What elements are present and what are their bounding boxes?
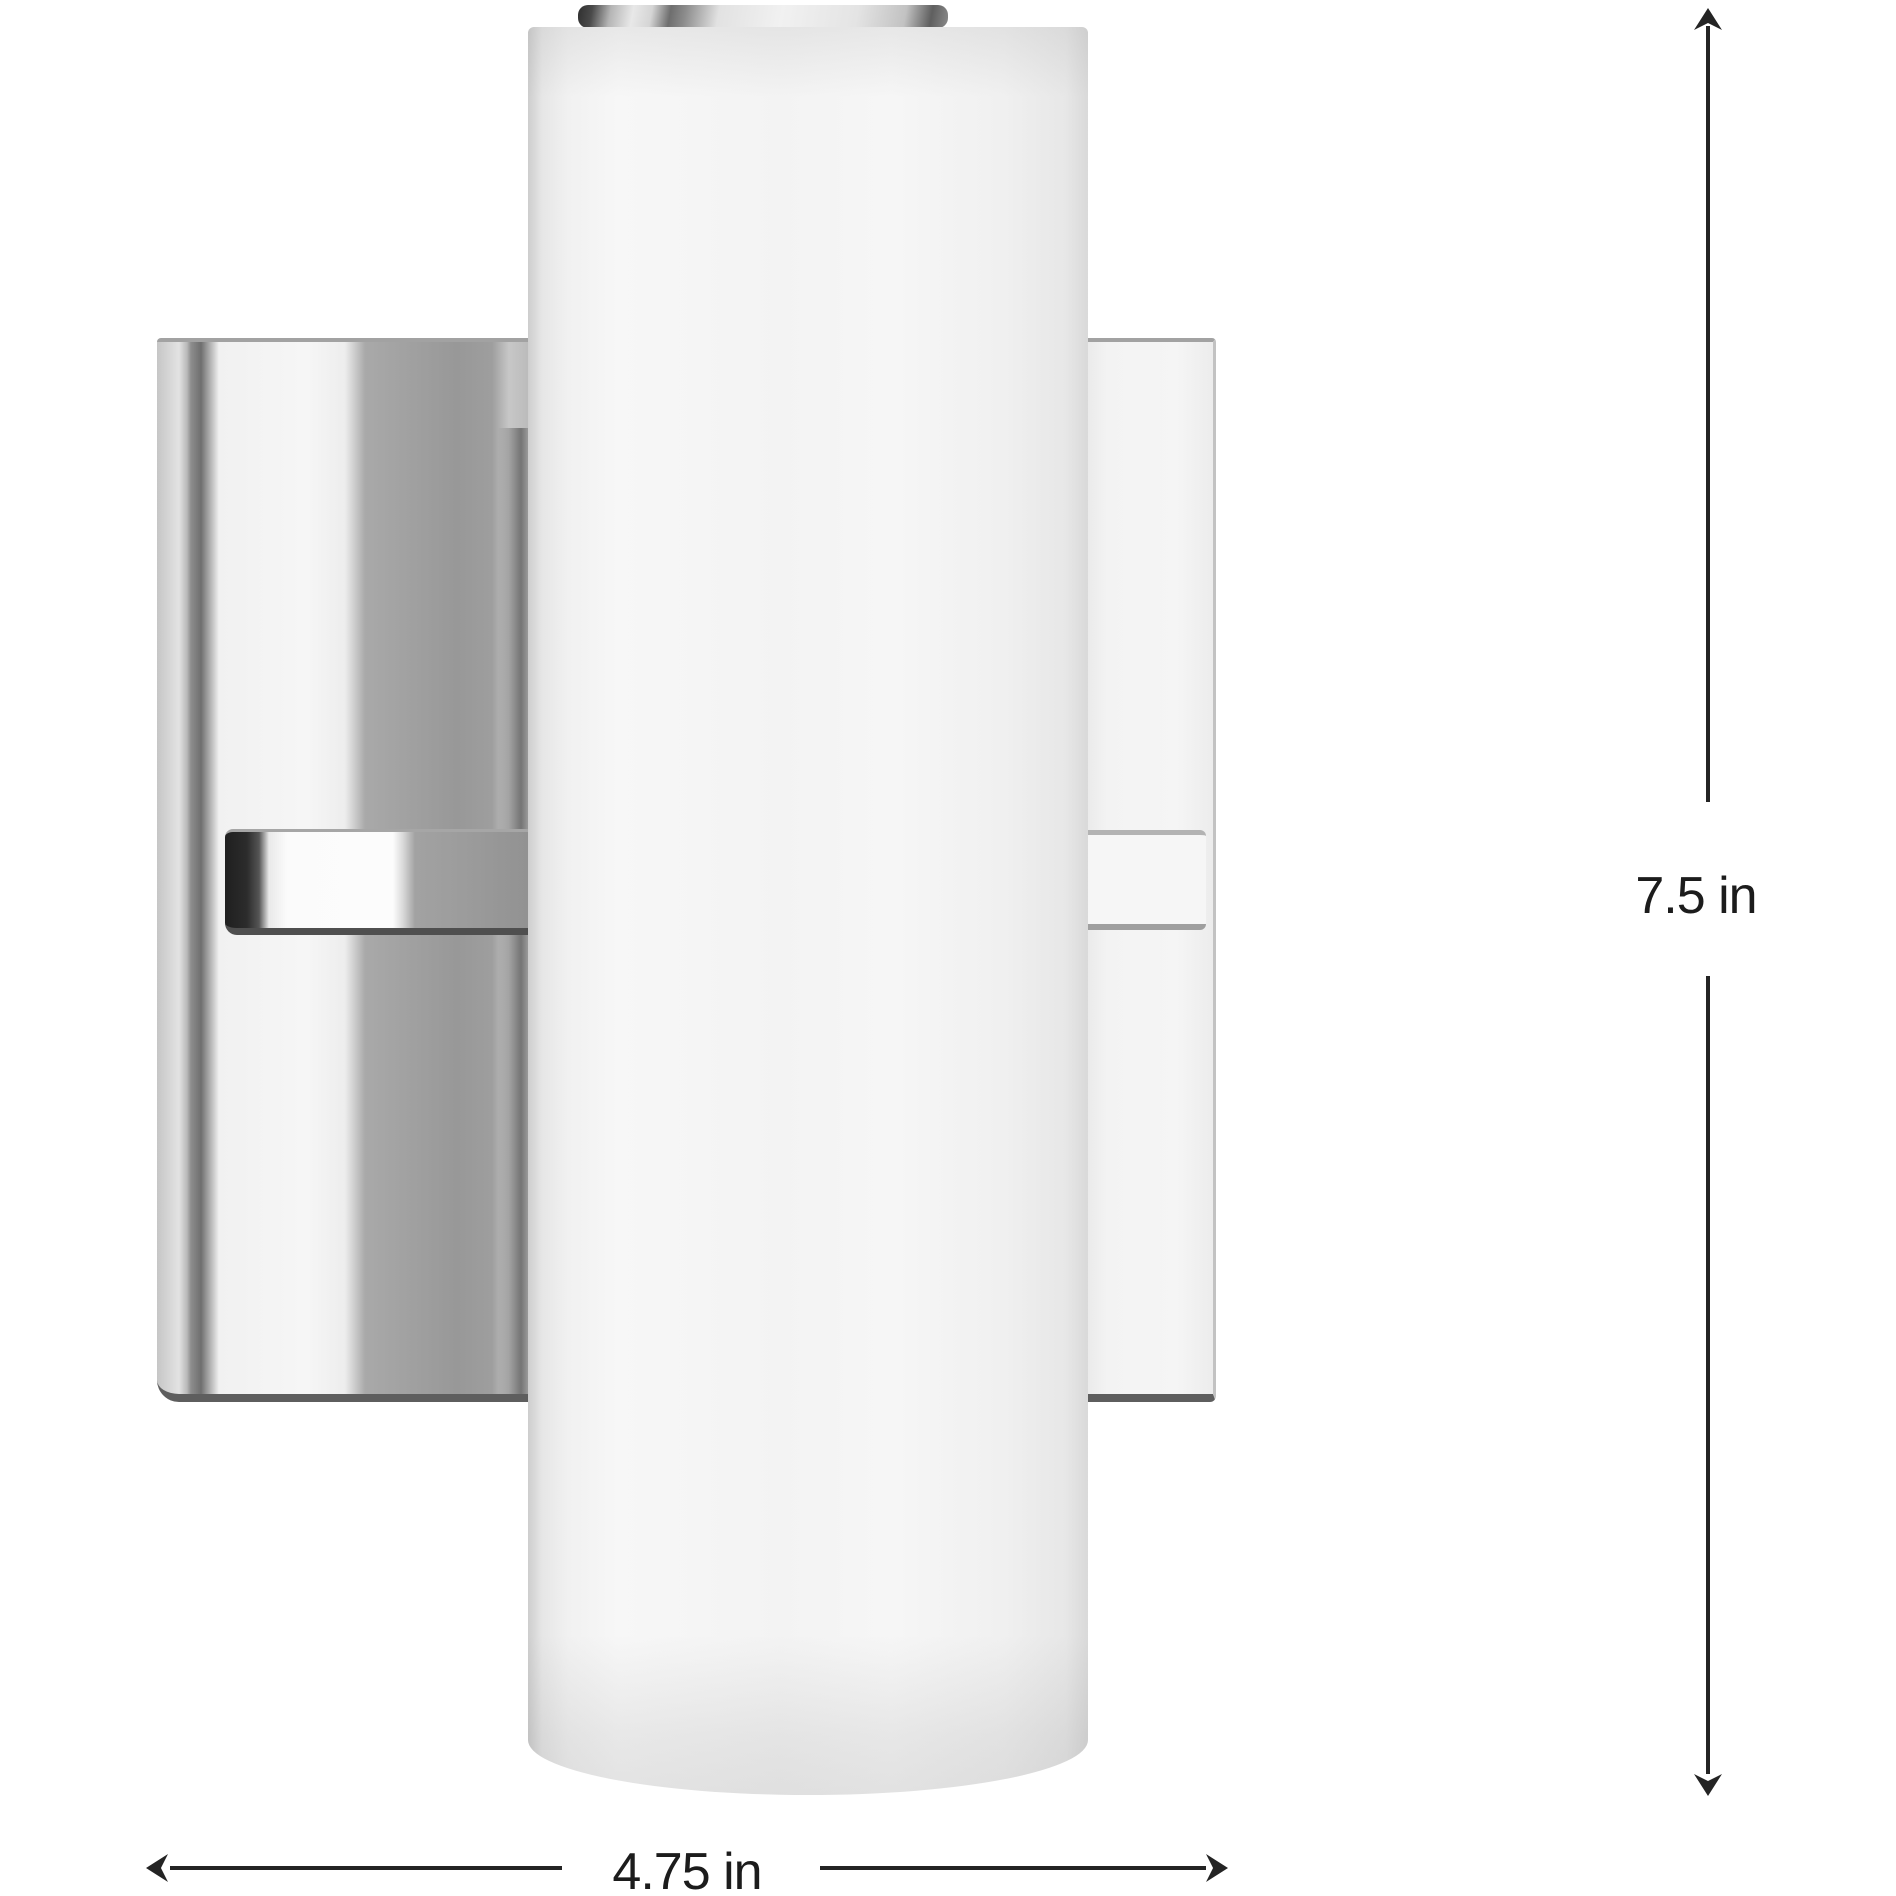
dimension-arrow-right-icon bbox=[1206, 1854, 1228, 1882]
width-dimension-line-right bbox=[820, 1866, 1206, 1870]
height-dimension-line-lower bbox=[1706, 976, 1710, 1774]
dimension-arrow-down-icon bbox=[1694, 1774, 1722, 1796]
height-dimension-label: 7.5 in bbox=[1586, 866, 1806, 926]
height-dimension-line-upper bbox=[1706, 26, 1710, 802]
dimension-arrow-left-icon bbox=[146, 1854, 168, 1882]
chrome-top-cap bbox=[578, 5, 948, 28]
product-dimension-diagram: 7.5 in 4.75 in bbox=[0, 0, 1896, 1896]
mounting-arm-right bbox=[1088, 830, 1206, 930]
width-dimension-label: 4.75 in bbox=[577, 1842, 797, 1896]
mounting-arm-left bbox=[225, 829, 540, 935]
cylinder-shade bbox=[528, 27, 1088, 1795]
width-dimension-line-left bbox=[170, 1866, 562, 1870]
